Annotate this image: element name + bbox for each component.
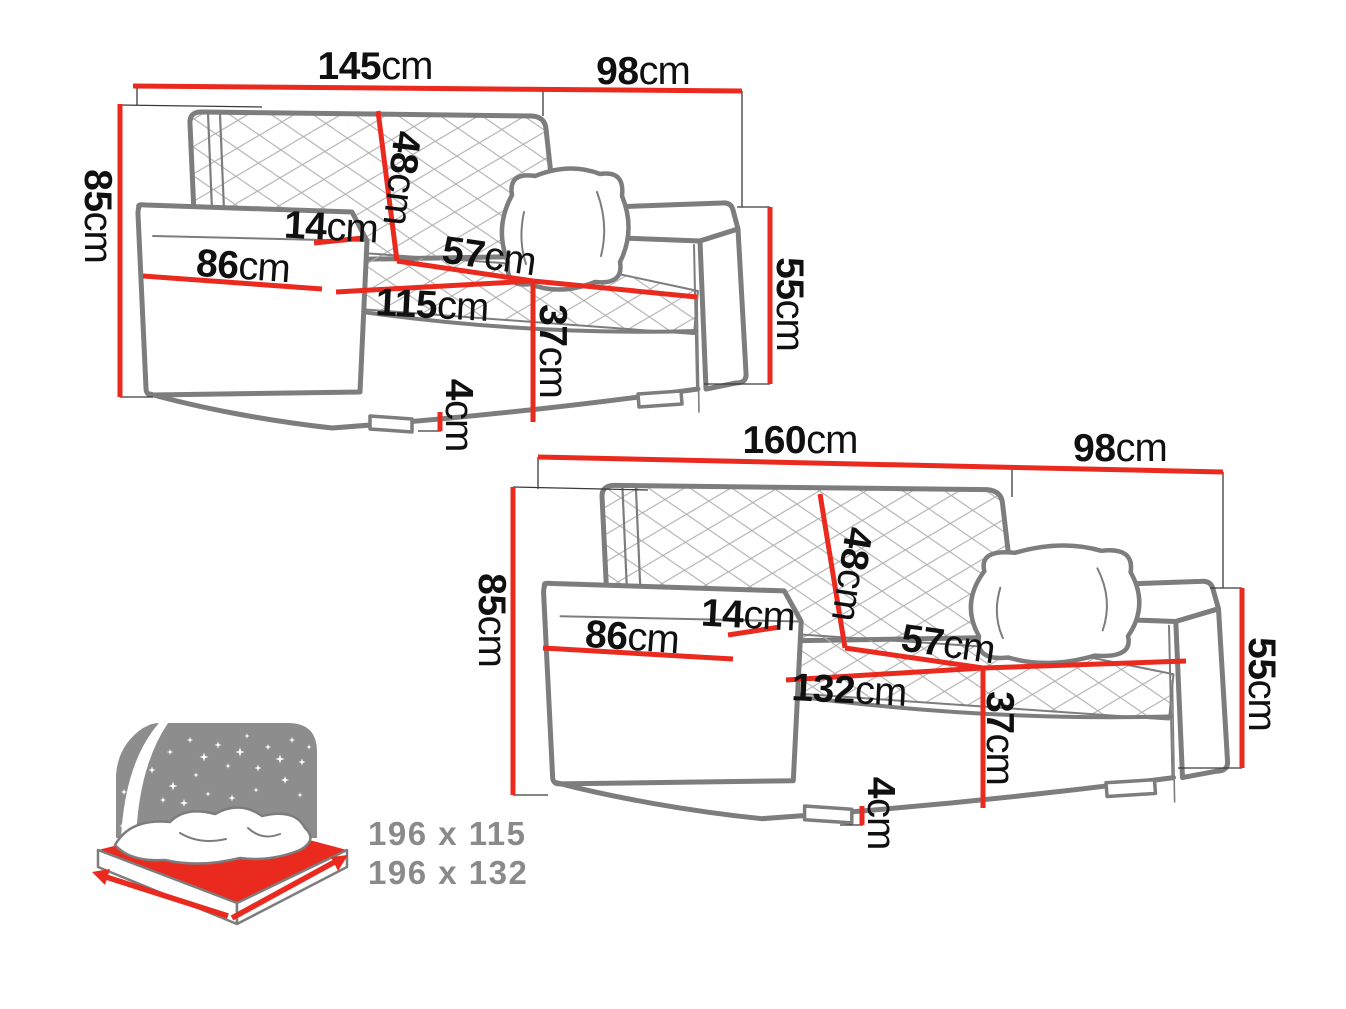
bed-size-text: 196 x 115 xyxy=(368,815,527,852)
sofa-145-label-front-height: 55cm xyxy=(768,257,812,351)
dimension-unit: cm xyxy=(437,400,481,451)
dimension-unit: cm xyxy=(859,798,903,849)
dimension-unit: cm xyxy=(531,347,575,398)
dimension-unit: cm xyxy=(823,566,874,624)
sofa-145-label-height: 85cm xyxy=(76,169,120,263)
sofa-dimension-diagram-canvas: 196 x 115196 x 132 145cm98cm85cm48cm14cm… xyxy=(0,0,1346,1009)
sofa-foot xyxy=(370,416,412,432)
dimension-value: 85 xyxy=(471,573,514,615)
dimension-unit: cm xyxy=(1116,426,1167,470)
dimension-value: 98 xyxy=(1073,427,1115,470)
sofa-foot xyxy=(638,391,682,407)
dimension-value: 37 xyxy=(979,691,1022,733)
right-armrest-front xyxy=(1176,609,1228,778)
dimension-unit: cm xyxy=(381,44,432,88)
sofa-145-label-depth: 98cm xyxy=(596,49,690,93)
arrow-head xyxy=(92,869,110,885)
sofa-160-label-depth: 98cm xyxy=(1073,426,1167,470)
dimension-unit: cm xyxy=(626,615,680,662)
dimension-unit: cm xyxy=(806,418,857,462)
dimension-value: 14 xyxy=(700,591,745,636)
base-corner-line xyxy=(697,297,699,412)
dimension-unit: cm xyxy=(1240,680,1284,731)
dimension-unit: cm xyxy=(639,49,690,93)
sofa-160-label-seat-width: 132cm xyxy=(790,665,907,715)
dimension-value: 4 xyxy=(438,379,481,401)
base-corner-line xyxy=(1172,681,1174,802)
dimension-unit: cm xyxy=(436,283,490,330)
dimension-value: 85 xyxy=(77,169,120,211)
sofa-foot xyxy=(1106,780,1156,797)
sofa-145-label-leg-height: 4cm xyxy=(437,379,481,452)
extension-tick xyxy=(120,105,262,107)
dimension-unit: cm xyxy=(374,171,424,227)
dimension-value: 160 xyxy=(743,419,807,462)
sofa-160-label-width: 160cm xyxy=(743,418,858,462)
dimension-unit: cm xyxy=(768,300,812,351)
bed-icon: 196 x 115196 x 132 xyxy=(92,723,528,924)
dimension-value: 55 xyxy=(769,257,812,299)
dimension-unit: cm xyxy=(325,205,379,252)
dimension-value: 48 xyxy=(831,524,880,573)
dimension-unit: cm xyxy=(854,668,908,715)
dimension-unit: cm xyxy=(742,593,796,640)
dimension-unit: cm xyxy=(76,212,120,263)
dimension-value: 115 xyxy=(375,281,439,327)
dimension-unit: cm xyxy=(237,244,291,291)
dimension-value: 98 xyxy=(596,50,638,93)
sofa-160-label-height: 85cm xyxy=(470,573,514,667)
dimension-value: 86 xyxy=(195,241,240,287)
sofa-160-label-armrest-depth: 86cm xyxy=(584,612,681,662)
dimension-value: 145 xyxy=(318,45,382,88)
sofa-145-label-seat-width: 115cm xyxy=(375,280,490,330)
sofa-160-label-leg-height: 4cm xyxy=(859,777,903,850)
dimension-diagram: 196 x 115196 x 132 145cm98cm85cm48cm14cm… xyxy=(0,0,1346,1009)
dimension-value: 132 xyxy=(791,666,857,712)
right-armrest-front xyxy=(700,229,746,389)
dimension-unit: cm xyxy=(470,616,514,667)
dimension-value: 57 xyxy=(899,616,947,664)
dimension-value: 86 xyxy=(584,612,629,658)
sofa-145-label-seat-height: 37cm xyxy=(531,304,575,398)
sofa-160-label-front-height: 55cm xyxy=(1240,637,1284,731)
dimension-unit: cm xyxy=(978,734,1022,785)
dimension-value: 48 xyxy=(381,129,429,176)
sofa-foot xyxy=(805,806,852,823)
sofa-160-label-armrest-width: 14cm xyxy=(700,591,796,640)
sofa-160-label-seat-height: 37cm xyxy=(978,691,1022,785)
dimension-value: 57 xyxy=(440,228,488,276)
sofa-145-label-width: 145cm xyxy=(318,44,433,88)
dimension-unit: cm xyxy=(941,622,998,673)
dimension-value: 4 xyxy=(860,777,903,799)
dimension-unit: cm xyxy=(482,234,539,285)
bed-size-text: 196 x 132 xyxy=(368,854,528,891)
sofa-145-label-armrest-depth: 86cm xyxy=(195,241,292,291)
dimension-value: 14 xyxy=(283,203,328,248)
dimension-value: 37 xyxy=(532,304,575,346)
sofa-145-label-armrest-width: 14cm xyxy=(283,203,379,252)
dimension-value: 55 xyxy=(1241,637,1284,679)
